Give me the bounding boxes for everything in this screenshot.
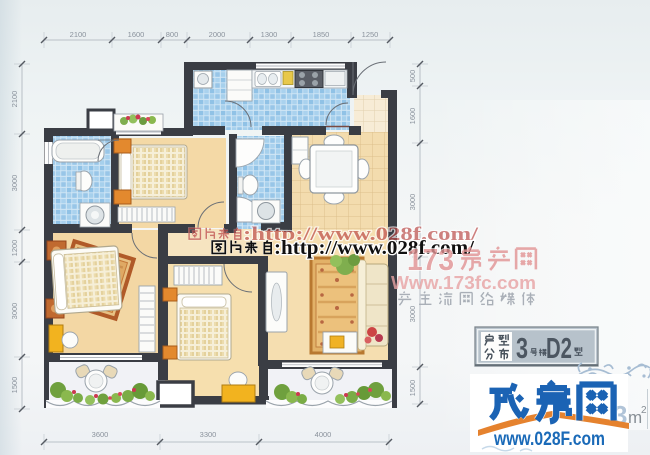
svg-text:1600: 1600 <box>128 30 145 39</box>
svg-text:1250: 1250 <box>362 30 379 39</box>
svg-text:3: 3 <box>516 333 528 365</box>
svg-text:www.028F.com: www.028F.com <box>493 429 605 450</box>
svg-text:4000: 4000 <box>315 430 332 439</box>
svg-text:3300: 3300 <box>200 430 217 439</box>
svg-text:D2: D2 <box>546 333 572 365</box>
svg-text:3000: 3000 <box>408 306 417 323</box>
svg-text:1300: 1300 <box>261 30 278 39</box>
svg-text:2100: 2100 <box>10 91 19 108</box>
svg-text:3000: 3000 <box>10 175 19 192</box>
svg-text:1500: 1500 <box>408 380 417 397</box>
svg-text:3000: 3000 <box>408 194 417 211</box>
svg-text:800: 800 <box>166 30 179 39</box>
svg-text:2: 2 <box>641 405 647 416</box>
svg-text:2100: 2100 <box>70 30 87 39</box>
svg-text:500: 500 <box>408 70 417 83</box>
svg-text:1850: 1850 <box>313 30 330 39</box>
svg-text:1500: 1500 <box>10 377 19 394</box>
svg-text:2000: 2000 <box>209 30 226 39</box>
svg-text:1600: 1600 <box>408 108 417 125</box>
svg-text:173: 173 <box>407 242 454 277</box>
svg-text:1200: 1200 <box>10 240 19 257</box>
svg-text:3600: 3600 <box>92 430 109 439</box>
svg-text:Www.173fc.com: Www.173fc.com <box>391 273 536 293</box>
svg-text:3000: 3000 <box>10 303 19 320</box>
